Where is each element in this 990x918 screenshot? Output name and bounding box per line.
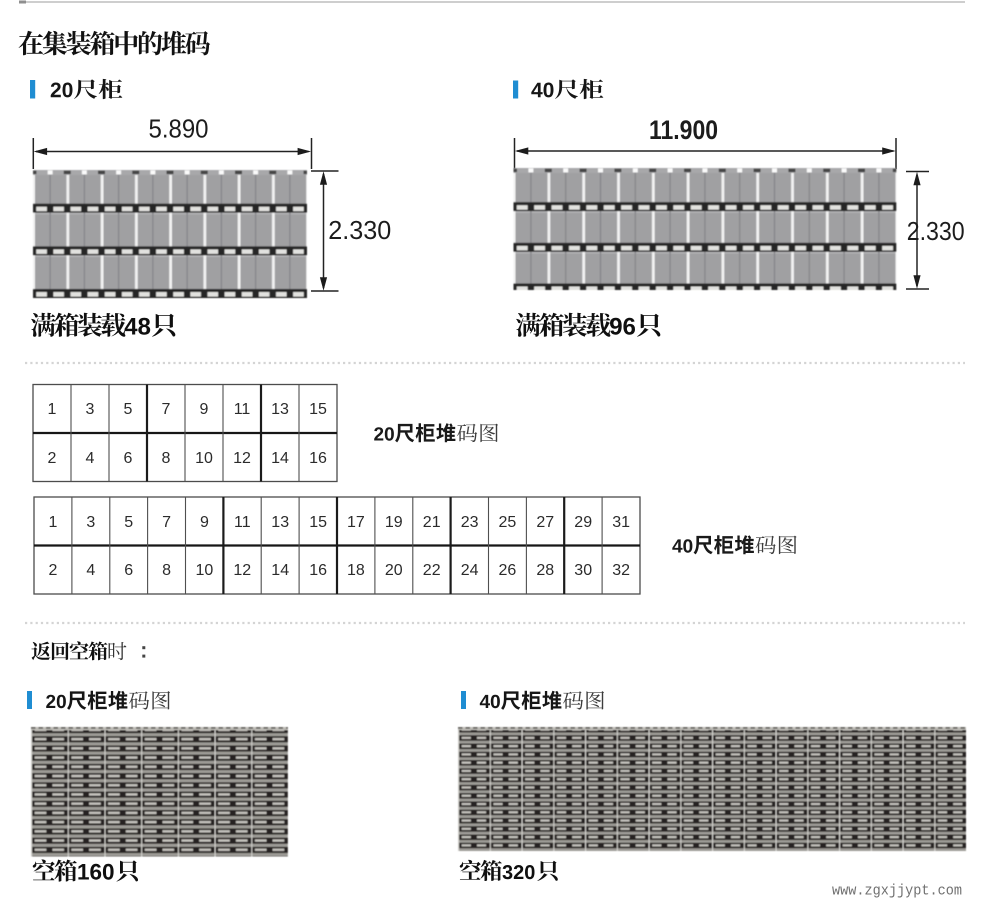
- svg-text:2.330: 2.330: [328, 215, 391, 245]
- svg-text:www.zgxjjypt.com: www.zgxjjypt.com: [832, 884, 962, 900]
- svg-text:5.890: 5.890: [149, 114, 209, 144]
- svg-text:11.900: 11.900: [649, 115, 718, 145]
- svg-text:2.330: 2.330: [907, 216, 965, 246]
